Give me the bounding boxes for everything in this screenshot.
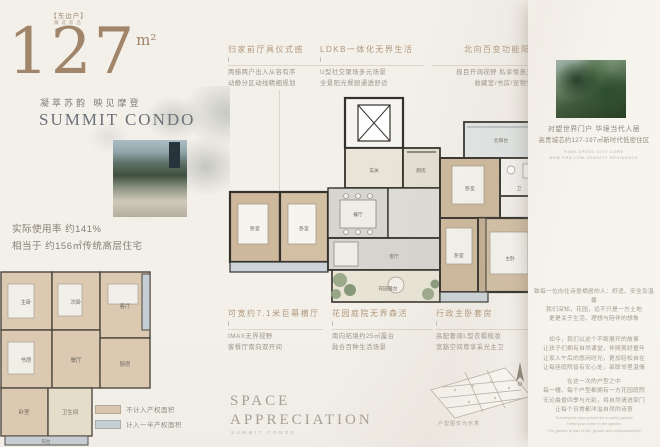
annotation-title: 行政主卧套房 — [436, 308, 536, 330]
annotation-line: 极目开阔视野 私享惬意天地 — [432, 68, 540, 79]
brochure-page: 【东边户】 臻选新品 127m² 凝萃苏韵 映见摩登 SUMMIT CONDO … — [0, 0, 660, 447]
plan-caption: 户型图仅为示意 — [438, 420, 480, 427]
main-floorplan: 玄关 厨房 餐厅 客厅 花园露台 北阳台 卧室 卫 卧室 主卧 卧室 卧室 — [228, 92, 542, 304]
sidebar-english-sub: HIGH-SPEED CITY CORE NEW ERA LOW-DENSITY… — [528, 149, 660, 162]
legend-swatch-tan — [95, 405, 121, 414]
garden-terrace — [331, 270, 440, 302]
room-label: 卫 — [517, 186, 522, 192]
slogan: 凝萃苏韵 映见摩登 — [40, 96, 142, 109]
annotation-north-balcony: 北向百变功能阳台 极目开阔视野 私享惬意天地 收藏室/书房/宠物空间 — [432, 44, 540, 89]
kitchen — [403, 148, 440, 188]
annotation-line: 客餐厅南向双开间 — [228, 343, 323, 354]
area-legend: 不计入产权面积 计入一半产权面积 — [95, 404, 182, 434]
annotation-title: LDKB一体化无界生活 — [320, 44, 424, 66]
east-wing — [440, 122, 538, 302]
room-label: 卧室 — [454, 252, 464, 259]
legend-label: 不计入产权面积 — [126, 404, 175, 414]
legend-label: 计入一半产权面积 — [126, 419, 182, 429]
paragraph-line: 致每一位向往诗意栖居的人：舒适、安全及温馨 — [532, 288, 656, 307]
annotation-line: 宽豁空间尊享采光主卫 — [436, 343, 536, 354]
annotation-line: 融合百种生活场景 — [332, 343, 432, 354]
annotation-line: 南向拓境约25㎡露台 — [332, 332, 432, 343]
room-label: 客厅 — [389, 253, 399, 260]
annotation-title: 花园庭院无界森活 — [332, 308, 432, 330]
paragraph-line: 如今，我们以这个不断展开的故事 — [532, 336, 656, 345]
annotation-line: 两梯两户出入从容有序 — [228, 68, 320, 79]
room-label: 花园露台 — [378, 285, 397, 292]
space-line1: SPACE — [230, 392, 373, 411]
sidebar-paragraph: 在这一次的户型之中 每一幢、每个户型都拥有一方花园庭院 无论晨昏四季与光影，将自… — [532, 378, 656, 415]
usage-line1: 实际使用率 约141% — [12, 222, 143, 239]
paragraph-line: 更是关于生活、理想与陪伴的想象 — [532, 315, 656, 324]
room-label: 阳台 — [42, 438, 51, 445]
annotation-title: 可宽约7.1米巨幕横厅 — [228, 308, 323, 330]
annotation-entry-hall: 归家前厅具仪式感 两梯两户出入从容有序 动静分区动线精细规划 — [228, 44, 320, 89]
south-balcony — [440, 292, 488, 302]
annotation-line: 全景阳光餐厨通透舒适 — [320, 79, 424, 90]
room-label: 卧室 — [465, 185, 475, 192]
area-number: 127 — [8, 15, 136, 89]
annotation-title: 归家前厅具仪式感 — [228, 44, 320, 66]
west-bedrooms — [230, 192, 328, 272]
paragraph-line: 我们深知，花园，远不只是一方土地 — [532, 306, 656, 315]
room-label: 卫生间 — [62, 408, 79, 416]
area-figure: 127m² — [8, 20, 156, 84]
annotation-line: 动静分区动线精细规划 — [228, 79, 320, 90]
annotation-line: 高配奢阔L型衣帽梳妆 — [436, 332, 536, 343]
paragraph-line: 每一幢、每个户型都拥有一方花园庭院 — [532, 387, 656, 396]
usage-line2: 相当于 约156㎡传统高层住宅 — [12, 239, 143, 256]
area-unit: m² — [136, 31, 156, 49]
room-label: 餐厅 — [70, 356, 82, 364]
usage-stats: 实际使用率 约141% 相当于 约156㎡传统高层住宅 — [12, 222, 143, 255]
paragraph-line: 让每个日常都洋溢自然的诗意 — [532, 406, 656, 415]
paragraph-line: 让家人午后的悠闲时光，更加轻松自在 — [532, 355, 656, 364]
legend-item: 计入一半产权面积 — [95, 419, 182, 429]
right-sidebar: 对望世界门户 华境当代人居 高贵城芯约127-197㎡新时代低密住区 HIGH-… — [528, 0, 660, 447]
room-label: 主卧 — [20, 298, 32, 306]
annotation-ldkb: LDKB一体化无界生活 U型社交聚场多元场景 全景阳光餐厨通透舒适 — [320, 44, 424, 89]
page-title: SUMMIT CONDO — [39, 110, 195, 130]
paragraph-line: 在这一次的户型之中 — [532, 378, 656, 387]
room-label: 主卧 — [505, 255, 515, 262]
sidebar-paragraph: 致每一位向往诗意栖居的人：舒适、安全及温馨 — [532, 288, 656, 307]
paragraph-line: 让每座庭院皆有安心处，串联邻里温情 — [532, 364, 656, 373]
annotation-line: U型社交聚场多元场景 — [320, 68, 424, 79]
footer-en-line: The garden is part of life, growth and c… — [532, 428, 656, 434]
elevator-core — [345, 98, 403, 148]
room-label: 卧室 — [18, 408, 30, 416]
sidebar-headline1: 对望世界门户 华境当代人居 — [528, 124, 660, 134]
room-label: 餐厅 — [353, 211, 363, 218]
annotation-title: 北向百变功能阳台 — [432, 44, 540, 66]
foliage-photo — [556, 60, 626, 118]
corridor — [388, 188, 440, 238]
foyer — [345, 148, 403, 188]
space-appreciation-title: SPACE APPRECIATION — [230, 392, 373, 430]
room-label: 客厅 — [119, 302, 131, 310]
sidebar-headline2: 高贵城芯约127-197㎡新时代低密住区 — [528, 135, 660, 144]
annotation-living-hall: 可宽约7.1米巨幕横厅 IMAX无界视野 客餐厅南向双开间 — [228, 308, 323, 353]
room-label: 书房 — [20, 356, 32, 364]
annotation-line: 收藏室/书房/宠物空间 — [432, 79, 540, 90]
room-label: 次卧 — [70, 298, 82, 306]
sidebar-footer-en: To everyone who yearns for a poetic gard… — [532, 415, 656, 434]
legend-item: 不计入产权面积 — [95, 404, 182, 414]
sidebar-paragraph: 我们深知，花园，远不只是一方土地 更是关于生活、理想与陪伴的想象 — [532, 306, 656, 325]
annotation-line: IMAX无界视野 — [228, 332, 323, 343]
room-label: 北阳台 — [494, 137, 509, 144]
site-plan-sketch — [425, 360, 540, 422]
paragraph-line: 无论晨昏四季与光影，将自然请进家门 — [532, 397, 656, 406]
sidebar-en-line: NEW ERA LOW-DENSITY RESIDENCE — [528, 155, 660, 161]
room-label: 卧室 — [299, 225, 309, 232]
room-label: 卧室 — [250, 225, 260, 232]
space-line2: APPRECIATION — [230, 411, 373, 430]
space-subtitle: SUMMIT CONDO — [231, 430, 297, 435]
annotation-master-suite: 行政主卧套房 高配奢阔L型衣帽梳妆 宽豁空间尊享采光主卫 — [436, 308, 536, 353]
legend-swatch-blue — [95, 420, 121, 429]
exterior-photo — [113, 140, 187, 217]
sidebar-paragraph: 如今，我们以这个不断展开的故事 让孩子们拥有自然课堂，伴随美好童年 让家人午后的… — [532, 336, 656, 373]
room-label: 厨房 — [119, 360, 131, 368]
photo-building-detail — [169, 142, 180, 168]
paragraph-line: 让孩子们拥有自然课堂，伴随美好童年 — [532, 345, 656, 354]
room-label: 厨房 — [416, 167, 426, 174]
room-label: 玄关 — [369, 167, 379, 174]
annotation-garden: 花园庭院无界森活 南向拓境约25㎡露台 融合百种生活场景 — [332, 308, 432, 353]
